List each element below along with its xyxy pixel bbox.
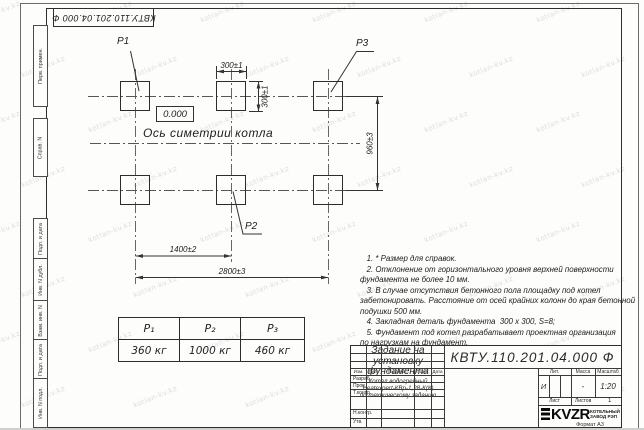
- load-table-header: P₁: [119, 318, 180, 339]
- col-list: Лист: [366, 369, 381, 376]
- note-line: подушки 500 мм.: [360, 307, 628, 316]
- title-block: Изм. Лист N докум. Подп. Дата Разраб. Пр…: [350, 345, 622, 428]
- foundation-pad: [120, 81, 150, 111]
- kvzr-logo: KVZR: [551, 406, 590, 423]
- foundation-pad: [216, 175, 246, 205]
- note-line: 1. * Размер для справок.: [360, 254, 628, 263]
- lit-value: И: [538, 375, 549, 397]
- load-table-value: 360 кг: [119, 340, 180, 362]
- load-point-label-p1: P1: [117, 36, 129, 47]
- mass-value: -: [571, 375, 595, 397]
- dim-300-vertical: 300±1: [261, 76, 270, 116]
- kvzr-logo-caption-line: КОТЕЛЬНЫЙ: [590, 409, 620, 414]
- sheets-value: 1: [608, 398, 611, 404]
- load-table-header-row: P₁ P₂ P₃: [119, 318, 304, 339]
- col-ndoc: N докум.: [381, 369, 414, 376]
- dim-300-horizontal: 300±1: [209, 61, 254, 70]
- col-podp: Подп.: [414, 369, 431, 376]
- format-label: Формат А3: [560, 422, 620, 428]
- load-table: P₁ P₂ P₃ 360 кг 1000 кг 460 кг: [118, 317, 305, 362]
- note-line: 2. Отклонение от горизонтального уровня …: [360, 265, 628, 274]
- kvzr-logo-caption: КОТЕЛЬНЫЙ ЗАВОД РЭП: [590, 409, 620, 419]
- kvzr-logo-caption-line: ЗАВОД РЭП: [590, 414, 620, 419]
- load-point-label-p2: P2: [245, 221, 257, 232]
- note-line: 4. Закладная деталь фундамента 300 х 300…: [360, 317, 628, 326]
- foundation-pad: [313, 81, 343, 111]
- load-table-value: 460 кг: [241, 340, 304, 362]
- load-point-label-p3: P3: [356, 38, 368, 49]
- drawing-sheet: kotlan-kv.kzkotlan-kv.kzkotlan-kv.kzkotl…: [0, 0, 644, 430]
- row-razrab: Разраб.: [353, 376, 371, 382]
- col-izm: Изм.: [351, 369, 366, 376]
- row-prov: Пров.: [353, 383, 366, 389]
- sheets-label: Листов: [575, 398, 591, 404]
- note-line: 3. В случае отсутствия бетонного пола пл…: [360, 286, 628, 295]
- dim-2800: 2800±3: [197, 267, 267, 276]
- load-table-value: 1000 кг: [180, 340, 241, 362]
- row-nkontr: Н.контр.: [353, 410, 372, 416]
- dim-960-vertical: 960±3: [366, 123, 375, 163]
- elevation-mark: 0.000: [156, 106, 194, 122]
- scale-value: 1:20: [595, 375, 621, 397]
- load-table-value-row: 360 кг 1000 кг 460 кг: [119, 339, 304, 362]
- load-table-header: P₃: [241, 318, 304, 339]
- col-data: Дата: [431, 369, 444, 376]
- foundation-pad: [313, 175, 343, 205]
- elevation-value: 0.000: [163, 109, 187, 120]
- load-table-header: P₂: [180, 318, 241, 339]
- foundation-pad: [216, 81, 246, 111]
- foundation-pad: [120, 175, 150, 205]
- dim-1400: 1400±2: [148, 245, 218, 254]
- note-line: 5. Фундамент под котел разрабатывает про…: [360, 328, 628, 337]
- note-line: фундамента не более 10 мм.: [360, 275, 628, 284]
- note-line: забетонировать. Расстояние от осей крайн…: [360, 296, 628, 305]
- sheet-label: Лист: [538, 397, 571, 405]
- symmetry-axis-label: Ось симетрии котла: [143, 126, 273, 140]
- doc-number: КВТУ.110.201.04.000 Ф: [444, 346, 621, 368]
- row-utv: Утв.: [353, 419, 363, 425]
- row-tkontr: Т.контр.: [353, 390, 371, 396]
- kvzr-logo-bars-icon: [541, 408, 550, 422]
